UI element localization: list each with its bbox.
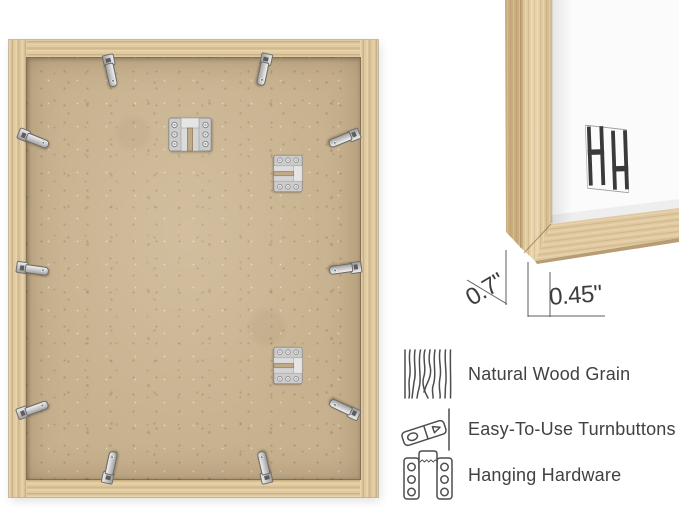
depth-dimension-label: 0.7" [461,268,509,312]
wood-frame-top [9,40,378,58]
feature-label: Easy-To-Use Turnbuttons [468,419,676,440]
product-image: 0.7" 0.45" Natural Wood Grain [0,0,679,507]
corner-detail-photo: 0.7" 0.45" [440,0,679,345]
feature-label: Natural Wood Grain [468,364,630,385]
hanging-hardware-bracket [273,155,303,193]
wood-frame-right [360,40,378,497]
turnbutton-tongue [329,263,354,275]
turnbutton-tongue [104,450,118,475]
turnbutton-tongue [24,263,49,275]
feature-row-hanging-hardware: Hanging Hardware [402,448,621,502]
hanging-hardware-bracket [168,117,212,152]
turnbutton-tongue [105,62,119,87]
turnbutton-tongue [256,61,270,86]
face-width-dimension-label: 0.45" [548,280,602,311]
feature-label: Hanging Hardware [468,465,621,486]
turnbutton-icon [398,405,456,453]
wood-grain-icon [402,348,454,400]
feature-row-turnbuttons: Easy-To-Use Turnbuttons [398,404,676,454]
feature-row-wood-grain: Natural Wood Grain [402,348,630,400]
hanging-hardware-bracket [273,347,303,385]
frame-back-photo [9,40,378,497]
turnbutton-tongue [256,450,270,475]
hanging-hardware-icon [402,448,454,502]
wood-frame-bottom [9,479,378,497]
